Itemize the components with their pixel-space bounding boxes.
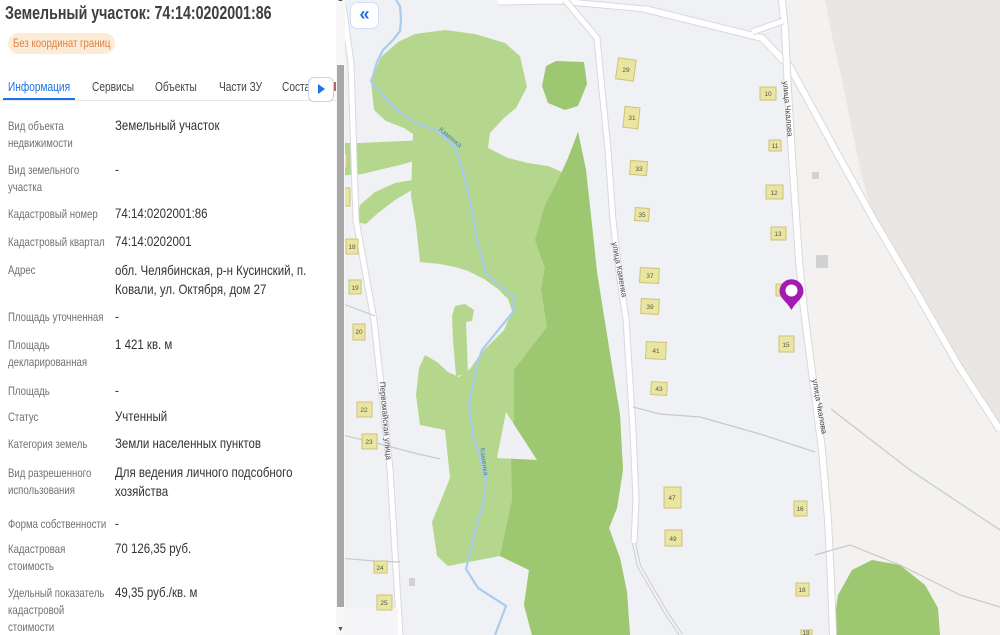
svg-text:16: 16 xyxy=(796,506,804,513)
svg-text:10: 10 xyxy=(764,91,772,98)
svg-text:49: 49 xyxy=(669,536,677,543)
svg-text:19: 19 xyxy=(802,630,810,635)
svg-text:25: 25 xyxy=(380,600,388,607)
svg-text:47: 47 xyxy=(668,495,676,502)
svg-text:19: 19 xyxy=(351,285,359,292)
svg-text:37: 37 xyxy=(646,273,654,280)
svg-text:22: 22 xyxy=(360,407,368,414)
svg-text:23: 23 xyxy=(365,439,373,446)
svg-text:29: 29 xyxy=(622,67,630,74)
svg-text:24: 24 xyxy=(376,565,384,572)
svg-text:35: 35 xyxy=(638,212,646,219)
svg-text:41: 41 xyxy=(652,348,660,355)
svg-text:20: 20 xyxy=(355,329,363,336)
svg-text:39: 39 xyxy=(646,304,654,311)
svg-text:13: 13 xyxy=(774,231,782,238)
svg-text:43: 43 xyxy=(655,386,663,393)
svg-text:18: 18 xyxy=(798,587,806,594)
svg-text:12: 12 xyxy=(770,190,778,197)
svg-text:31: 31 xyxy=(628,115,636,122)
svg-text:18: 18 xyxy=(348,244,356,251)
svg-text:33: 33 xyxy=(635,166,643,173)
svg-text:11: 11 xyxy=(772,143,779,150)
svg-text:15: 15 xyxy=(782,342,790,349)
